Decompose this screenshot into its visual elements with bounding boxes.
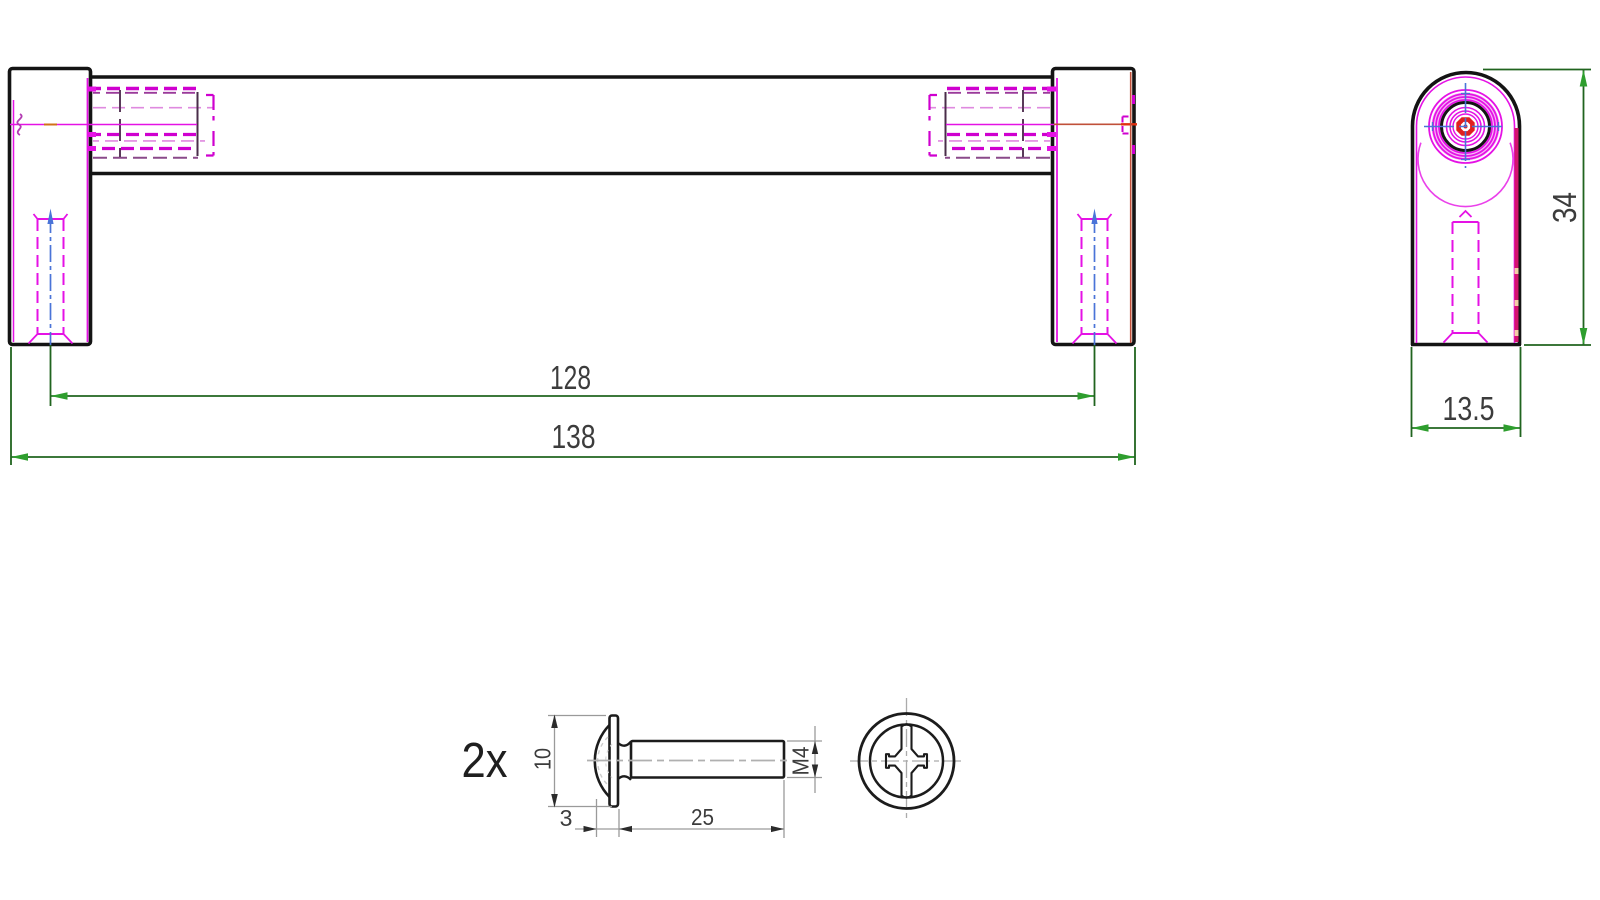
- svg-text:3: 3: [560, 805, 573, 831]
- svg-text:M4: M4: [788, 746, 814, 775]
- svg-text:25: 25: [691, 804, 714, 830]
- svg-text:34: 34: [1546, 192, 1583, 223]
- svg-text:13.5: 13.5: [1443, 390, 1495, 427]
- svg-text:10: 10: [530, 748, 556, 770]
- svg-text:2x: 2x: [462, 734, 508, 788]
- svg-text:128: 128: [550, 359, 591, 396]
- svg-text:138: 138: [552, 418, 596, 455]
